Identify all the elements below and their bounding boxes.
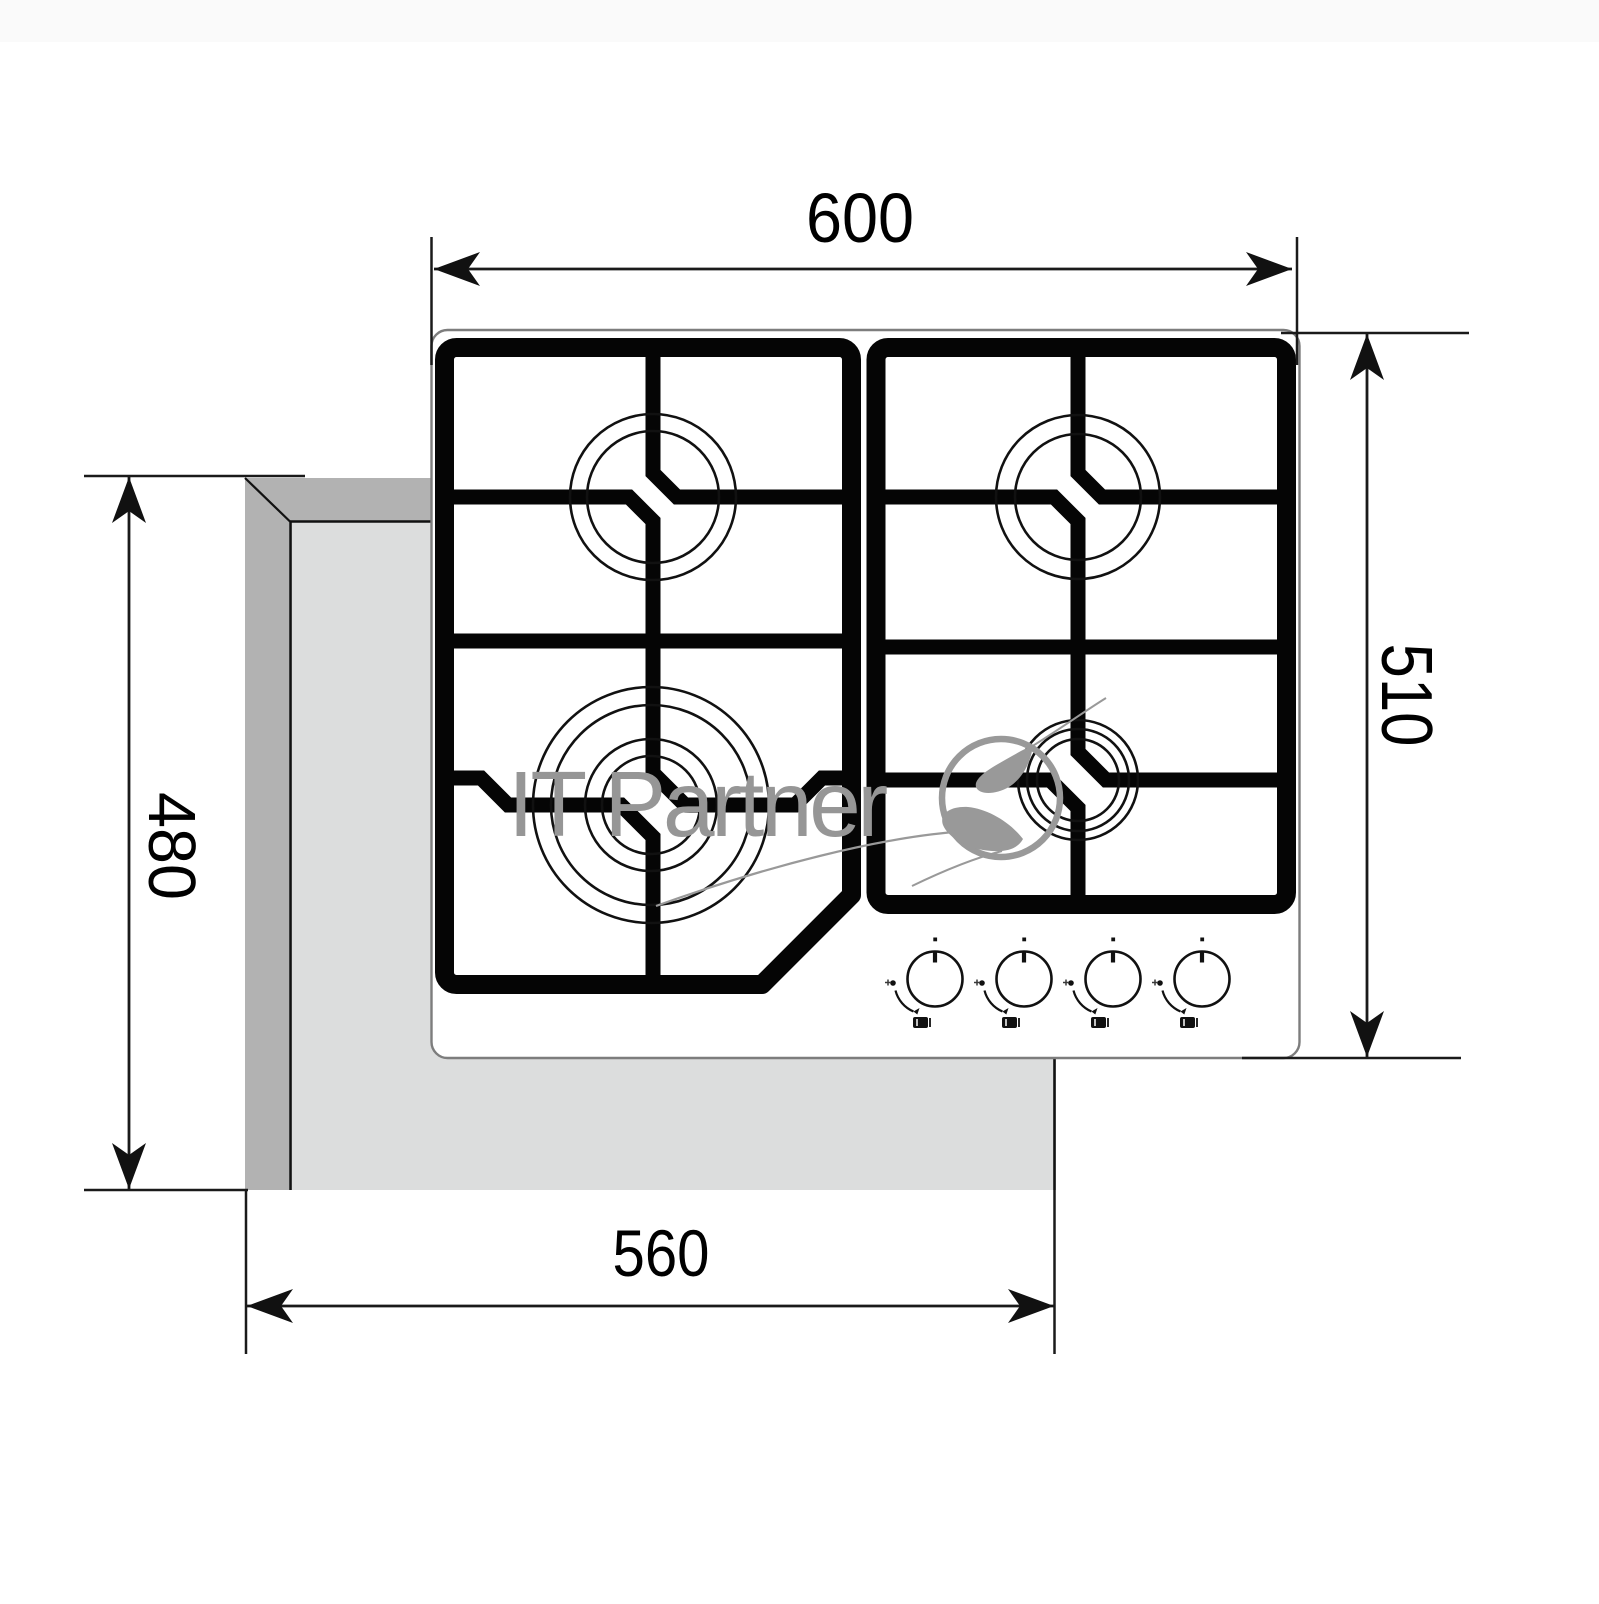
svg-text:510: 510 xyxy=(1366,644,1446,747)
svg-text:560: 560 xyxy=(613,1216,710,1290)
svg-text:600: 600 xyxy=(806,179,914,257)
svg-text:480: 480 xyxy=(134,792,209,900)
svg-text:IT Partner: IT Partner xyxy=(508,752,887,856)
